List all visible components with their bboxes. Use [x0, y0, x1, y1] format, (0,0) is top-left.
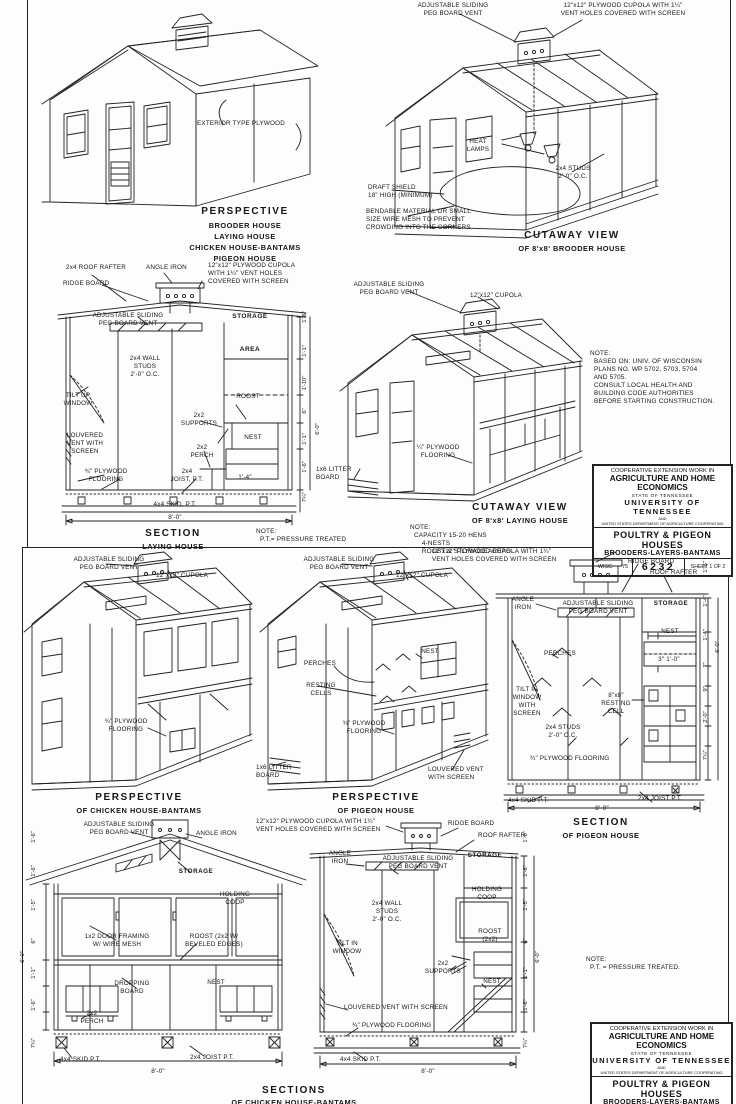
- floor-skid: [54, 1030, 282, 1048]
- label-cb-tilt: TILT IN WINDOW: [326, 940, 368, 956]
- label-cb-roost: ROOST (2x2): [470, 928, 510, 944]
- tb1-line1: COOPERATIVE EXTENSION WORK IN: [594, 466, 731, 474]
- label-ca-dim-8: 8'-0": [128, 1068, 188, 1076]
- nest-boxes: [170, 728, 195, 752]
- brooder-cutaway-title: CUTAWAY VIEW: [510, 230, 634, 243]
- dim-psec-1: 1'-4": [703, 584, 709, 618]
- label-leaders: [528, 552, 672, 802]
- roof-framing: [340, 319, 582, 391]
- label-brooder-peg-vent: ADJUSTABLE SLIDING PEG BOARD VENT: [398, 2, 508, 18]
- dim-cb-1: 1'-6": [523, 854, 529, 888]
- perspective-sub-laying: LAYING HOUSE: [185, 232, 305, 241]
- label-resting-cell: 8"x8" RESTING CELL: [596, 692, 636, 716]
- label-2x2-supports: 2x2 SUPPORTS: [176, 412, 222, 428]
- label-area: AREA: [228, 346, 272, 354]
- label-laying-cupola: 12"x12" PLYWOOD CUPOLA WITH 1¼" VENT HOL…: [208, 262, 318, 286]
- label-ridge-board: RIDGE BOARD: [63, 280, 133, 288]
- dim-ca-5: 1'-1": [31, 956, 37, 990]
- chicken-perspective-title: PERSPECTIVE: [79, 792, 199, 805]
- label-cb-louver: LOUVERED VENT WITH SCREEN: [344, 1004, 464, 1012]
- dim-laying-7: 7¼": [302, 480, 308, 514]
- storage-area: [224, 359, 288, 395]
- label-cb-ridge: RIDGE BOARD: [448, 820, 518, 828]
- dim-cb-2: 1'-5": [523, 888, 529, 922]
- dim-ca-0: 1'-6": [31, 820, 37, 854]
- dim-cb-4: 6": [523, 924, 529, 958]
- pigeon-perspective-subtitle: OF PIGEON HOUSE: [316, 806, 436, 815]
- label-cb-rafter: ROOF RAFTER: [478, 832, 548, 840]
- label-roost: ROOST: [228, 393, 268, 401]
- laying-section-subtitle: LAYING HOUSE: [113, 542, 233, 551]
- label-cb-dim-8: 8'-0": [398, 1068, 458, 1076]
- label-angle-iron: ANGLE IRON: [146, 264, 206, 272]
- tb2-line6: UNITED STATES DEPARTMENT OF AGRICULTURE …: [592, 1070, 731, 1077]
- label-cb-angle: ANGLE IRON: [322, 850, 358, 866]
- label-cb-cupola: 12"x12" PLYWOOD CUPOLA WITH 1¼" VENT HOL…: [256, 818, 388, 834]
- label-ca-skid: 4x4 SKID P.T.: [60, 1056, 130, 1064]
- label-psec-studs: 2x4 STUDS 2'-0" O.C.: [538, 724, 588, 740]
- laying-cutaway-drawing: [330, 283, 588, 513]
- label-pigeon-cupola: 12"x12" CUPOLA: [396, 572, 476, 580]
- label-leaders: [272, 564, 464, 770]
- label-cutaway-cupola: 12"x12" CUPOLA: [470, 292, 550, 300]
- dim-ca-3: 6'-0": [20, 940, 26, 974]
- label-pigeon-litter: 1x6 LITTER BOARD: [256, 764, 306, 780]
- label-psec-perches: PERCHES: [544, 650, 594, 658]
- label-psec-flooring: ¾" PLYWOOD FLOORING: [530, 755, 630, 763]
- label-pigeon-nest: NEST: [412, 648, 448, 656]
- resting-cells: [644, 686, 696, 762]
- label-dim-1-4: 1'-4": [228, 474, 262, 482]
- label-leaders: [106, 564, 172, 736]
- label-pigeon-peg-vent: ADJUSTABLE SLIDING PEG BOARD VENT: [286, 556, 392, 572]
- perch-brackets: [376, 654, 416, 702]
- dim-laying-6: 1'-6": [302, 450, 308, 484]
- dim-psec-2: 1'-4": [703, 618, 709, 652]
- label-brooder-studs: 2x4 STUDS 2'-0" O.C.: [548, 165, 598, 181]
- blueprint-page: EXTERIOR TYPE PLYWOOD PERSPECTIVE BROODE…: [0, 0, 736, 1104]
- label-cb-peg-vent: ADJUSTABLE SLIDING PEG BOARD VENT: [368, 855, 468, 871]
- label-cb-supports: 2x2 SUPPORTS: [420, 960, 466, 976]
- label-laying-dim-8: 8'-0": [145, 514, 205, 522]
- label-cb-flooring: ¾" PLYWOOD FLOORING: [352, 1022, 462, 1030]
- peg-vent-panel: [116, 854, 152, 872]
- label-chicken-flooring: ¾" PLYWOOD FLOORING: [96, 718, 156, 734]
- dim-ca-6: 1'-6": [31, 988, 37, 1022]
- label-cutaway-peg-vent: ADJUSTABLE SLIDING PEG BOARD VENT: [336, 281, 442, 297]
- cupola: [570, 560, 622, 594]
- label-laying-skid: 4x4 SKID, P.T.: [140, 501, 210, 509]
- cupola: [514, 28, 554, 134]
- label-ca-door-framing: 1x2 DOOR FRAMING W/ WIRE MESH: [72, 933, 162, 949]
- label-pigeon-louver: LOUVERED VENT WITH SCREEN: [428, 766, 492, 782]
- roof: [26, 834, 306, 885]
- wisconsin-note: NOTE: BASED ON: UNIV. OF WISCONSIN PLANS…: [590, 350, 715, 406]
- dim-psec-5: 2'-0": [703, 700, 709, 734]
- label-ca-dropping: DROPPING BOARD: [106, 980, 158, 996]
- dim-ca-1: 1'-6": [31, 854, 37, 888]
- sections-subtitle: OF CHICKEN HOUSE-BANTAMS: [224, 1098, 364, 1104]
- sheet1-pt-note: NOTE: P.T.= PRESSURE TREATED: [256, 528, 346, 544]
- label-laying-flooring: ¾" PLYWOOD FLOORING: [78, 468, 134, 484]
- dim-ca-2: 1'-5": [31, 888, 37, 922]
- tb2-subtitle: BROODERS-LAYERS-BANTAMS: [592, 1099, 731, 1104]
- pigeon-section-drawing: [492, 550, 722, 818]
- gable-wall: [348, 335, 474, 495]
- label-psec-tilt: TILT IN WINDOW WITH SCREEN: [506, 686, 548, 717]
- dim-laying-0: 1'-6": [302, 300, 308, 334]
- sections-title: SECTIONS: [234, 1085, 354, 1098]
- label-heat-lamps: HEAT LAMPS: [458, 138, 498, 154]
- label-cb-coop: HOLDING COOP: [462, 886, 512, 902]
- label-cutaway-flooring: ¼" PLYWOOD FLOORING: [408, 444, 468, 460]
- door: [106, 102, 134, 204]
- label-resting-cells: RESTING CELLS: [296, 682, 346, 698]
- dim-cb-5: 1'-1": [523, 956, 529, 990]
- label-psec-angle: ANGLE IRON: [505, 596, 541, 612]
- dim-laying-3: 6'-0": [315, 412, 321, 446]
- label-storage: STORAGE: [222, 313, 278, 321]
- tb2-line4: UNIVERSITY OF TENNESSEE: [592, 1056, 731, 1065]
- label-ca-joist: 2x4 JOIST P.T.: [190, 1054, 260, 1062]
- label-tilt-up-window: TILT UP WINDOW: [56, 392, 100, 408]
- label-chicken-peg-vent: ADJUSTABLE SLIDING PEG BOARD VENT: [56, 556, 162, 572]
- floor-skid: [314, 1032, 520, 1053]
- label-louvered-vent: LOUVERED VENT WITH SCREEN: [62, 432, 108, 456]
- chicken-perspective-drawing: [20, 552, 265, 794]
- dim-cb-7: 7¼": [523, 1026, 529, 1060]
- tb2-line1: COOPERATIVE EXTENSION WORK IN: [592, 1024, 731, 1032]
- dim-cb-3: 6'-0": [535, 940, 541, 974]
- tb1-line2: AGRICULTURE AND HOME ECONOMICS: [594, 474, 731, 492]
- label-psec-dim-3-10: 3" 1'-0": [644, 656, 694, 664]
- label-ca-angle: ANGLE IRON: [196, 830, 256, 838]
- tb1-title: POULTRY & PIGEON HOUSES: [594, 528, 731, 550]
- dim-cb-0: 1'-6": [523, 820, 529, 854]
- label-cb-skid: 4x4 SKID P.T.: [340, 1056, 410, 1064]
- roost-shelf: [480, 401, 575, 483]
- cupola: [172, 14, 212, 50]
- label-laying-peg-vent: ADJUSTABLE SLIDING PEG BOARD VENT: [78, 312, 178, 328]
- tb2-line2: AGRICULTURE AND HOME ECONOMICS: [592, 1032, 731, 1050]
- tb1-line6: UNITED STATES DEPARTMENT OF AGRICULTURE …: [594, 521, 731, 528]
- shelf-resting-cells: [374, 604, 488, 770]
- label-ca-nest: NEST: [198, 979, 234, 987]
- pigeon-perspective-drawing: [256, 552, 491, 794]
- label-wall-studs: 2x4 WALL STUDS 2'-0" O.C.: [118, 355, 172, 379]
- label-ca-perch: 2x2 PERCH: [74, 1010, 110, 1026]
- cupola: [156, 283, 204, 313]
- floor-skid: [32, 734, 252, 790]
- label-litter-board: 1x6 LITTER BOARD: [316, 466, 366, 482]
- roof-framing: [386, 50, 658, 126]
- label-leaders: [76, 273, 246, 493]
- label-psec-nest: NEST: [652, 628, 688, 636]
- label-psec-ridge: RIDGE BOARD: [628, 558, 698, 566]
- dim-psec-7: 6'-0": [715, 630, 721, 664]
- label-ca-coop: HOLDING COOP: [210, 891, 260, 907]
- label-roof-rafter: 2x4 ROOF RAFTER: [66, 264, 156, 272]
- label-psec-cupola: 12"x12" PLYWOOD CUPOLA WITH 1¼" VENT HOL…: [432, 548, 562, 564]
- mid-rail: [54, 960, 282, 965]
- label-ca-peg-vent: ADJUSTABLE SLIDING PEG BOARD VENT: [66, 821, 172, 837]
- label-draft-shield: DRAFT SHIELD 18" HIGH (MINIMUM): [368, 184, 458, 200]
- pigeon-perspective-title: PERSPECTIVE: [316, 792, 436, 805]
- label-ca-storage: STORAGE: [168, 868, 224, 876]
- storage-nest: [642, 632, 696, 672]
- label-ca-roost: ROOST (2x2 W/ BEVELED EDGES): [172, 933, 256, 949]
- louvered-vent: [454, 733, 470, 748]
- label-pigeon-perches: PERCHES: [304, 660, 354, 668]
- label-psec-rafter: ROOF RAFTER: [650, 569, 720, 577]
- perspective-title: PERSPECTIVE: [185, 206, 305, 219]
- label-psec-joist: 2x4 JOIST P.T.: [638, 795, 708, 803]
- chicken-section-a-drawing: [20, 818, 312, 1070]
- label-bendable-material: BENDABLE MATERIAL OR SMALL SIZE WIRE MES…: [366, 208, 476, 232]
- label-psec-storage: STORAGE: [646, 600, 696, 608]
- chicken-perspective-subtitle: OF CHICKEN HOUSE-BANTAMS: [69, 806, 209, 815]
- dim-laying-1: 1'-1": [302, 334, 308, 368]
- perspective-sub-chicken: CHICKEN HOUSE-BANTAMS: [185, 243, 305, 252]
- dim-cb-6: 1'-6": [523, 988, 529, 1022]
- label-psec-dim-8: 8'-0": [572, 805, 632, 813]
- title-block-sheet2: COOPERATIVE EXTENSION WORK IN AGRICULTUR…: [590, 1022, 733, 1104]
- label-brooder-cupola: 12"x12" PLYWOOD CUPOLA WITH 1¼" VENT HOL…: [558, 2, 688, 18]
- dimension-lines: [43, 884, 282, 1066]
- dim-ca-4: 6": [31, 924, 37, 958]
- label-cb-studs: 2x4 WALL STUDS 2'-0" O.C.: [360, 900, 414, 924]
- label-psec-skid: 4x4 SKID P.T.: [508, 797, 578, 805]
- label-nest: NEST: [238, 434, 268, 442]
- dim-psec-0: 1'-6": [703, 550, 709, 584]
- label-psec-peg-vent: ADJUSTABLE SLIDING PEG BOARD VENT: [548, 600, 648, 616]
- pigeon-section-title: SECTION: [541, 817, 661, 830]
- dim-ca-7: 7¼": [31, 1026, 37, 1060]
- label-pigeon-flooring: ¾" PLYWOOD FLOORING: [334, 720, 394, 736]
- perspective-sub-brooder: BROODER HOUSE: [185, 221, 305, 230]
- label-cb-nest: NEST: [474, 978, 510, 986]
- sheet2-pt-note: NOTE: P.T. = PRESSURE TREATED.: [586, 956, 680, 972]
- dim-psec-6: 7¼": [703, 738, 709, 772]
- mesh-doors: [144, 618, 238, 676]
- laying-section-title: SECTION: [113, 528, 233, 541]
- label-exterior-plywood: EXTERIOR TYPE PLYWOOD: [178, 120, 304, 128]
- laying-cutaway-title: CUTAWAY VIEW: [458, 502, 582, 515]
- perspective-house-drawing: [28, 2, 328, 214]
- tb2-title: POULTRY & PIGEON HOUSES: [592, 1077, 731, 1099]
- pigeon-section-subtitle: OF PIGEON HOUSE: [541, 831, 661, 840]
- label-chicken-cupola: 12"x12" CUPOLA: [156, 572, 236, 580]
- label-laying-joist: 2x4 JOIST, P.T.: [164, 468, 210, 484]
- brooder-cutaway-subtitle: OF 8'x8' BROODER HOUSE: [510, 244, 634, 253]
- cupola: [401, 823, 441, 850]
- label-2x2-perch: 2x2 PERCH: [184, 444, 220, 460]
- label-cb-storage: STORAGE: [460, 852, 510, 860]
- tb1-line4: UNIVERSITY OF TENNESSEE: [594, 498, 731, 516]
